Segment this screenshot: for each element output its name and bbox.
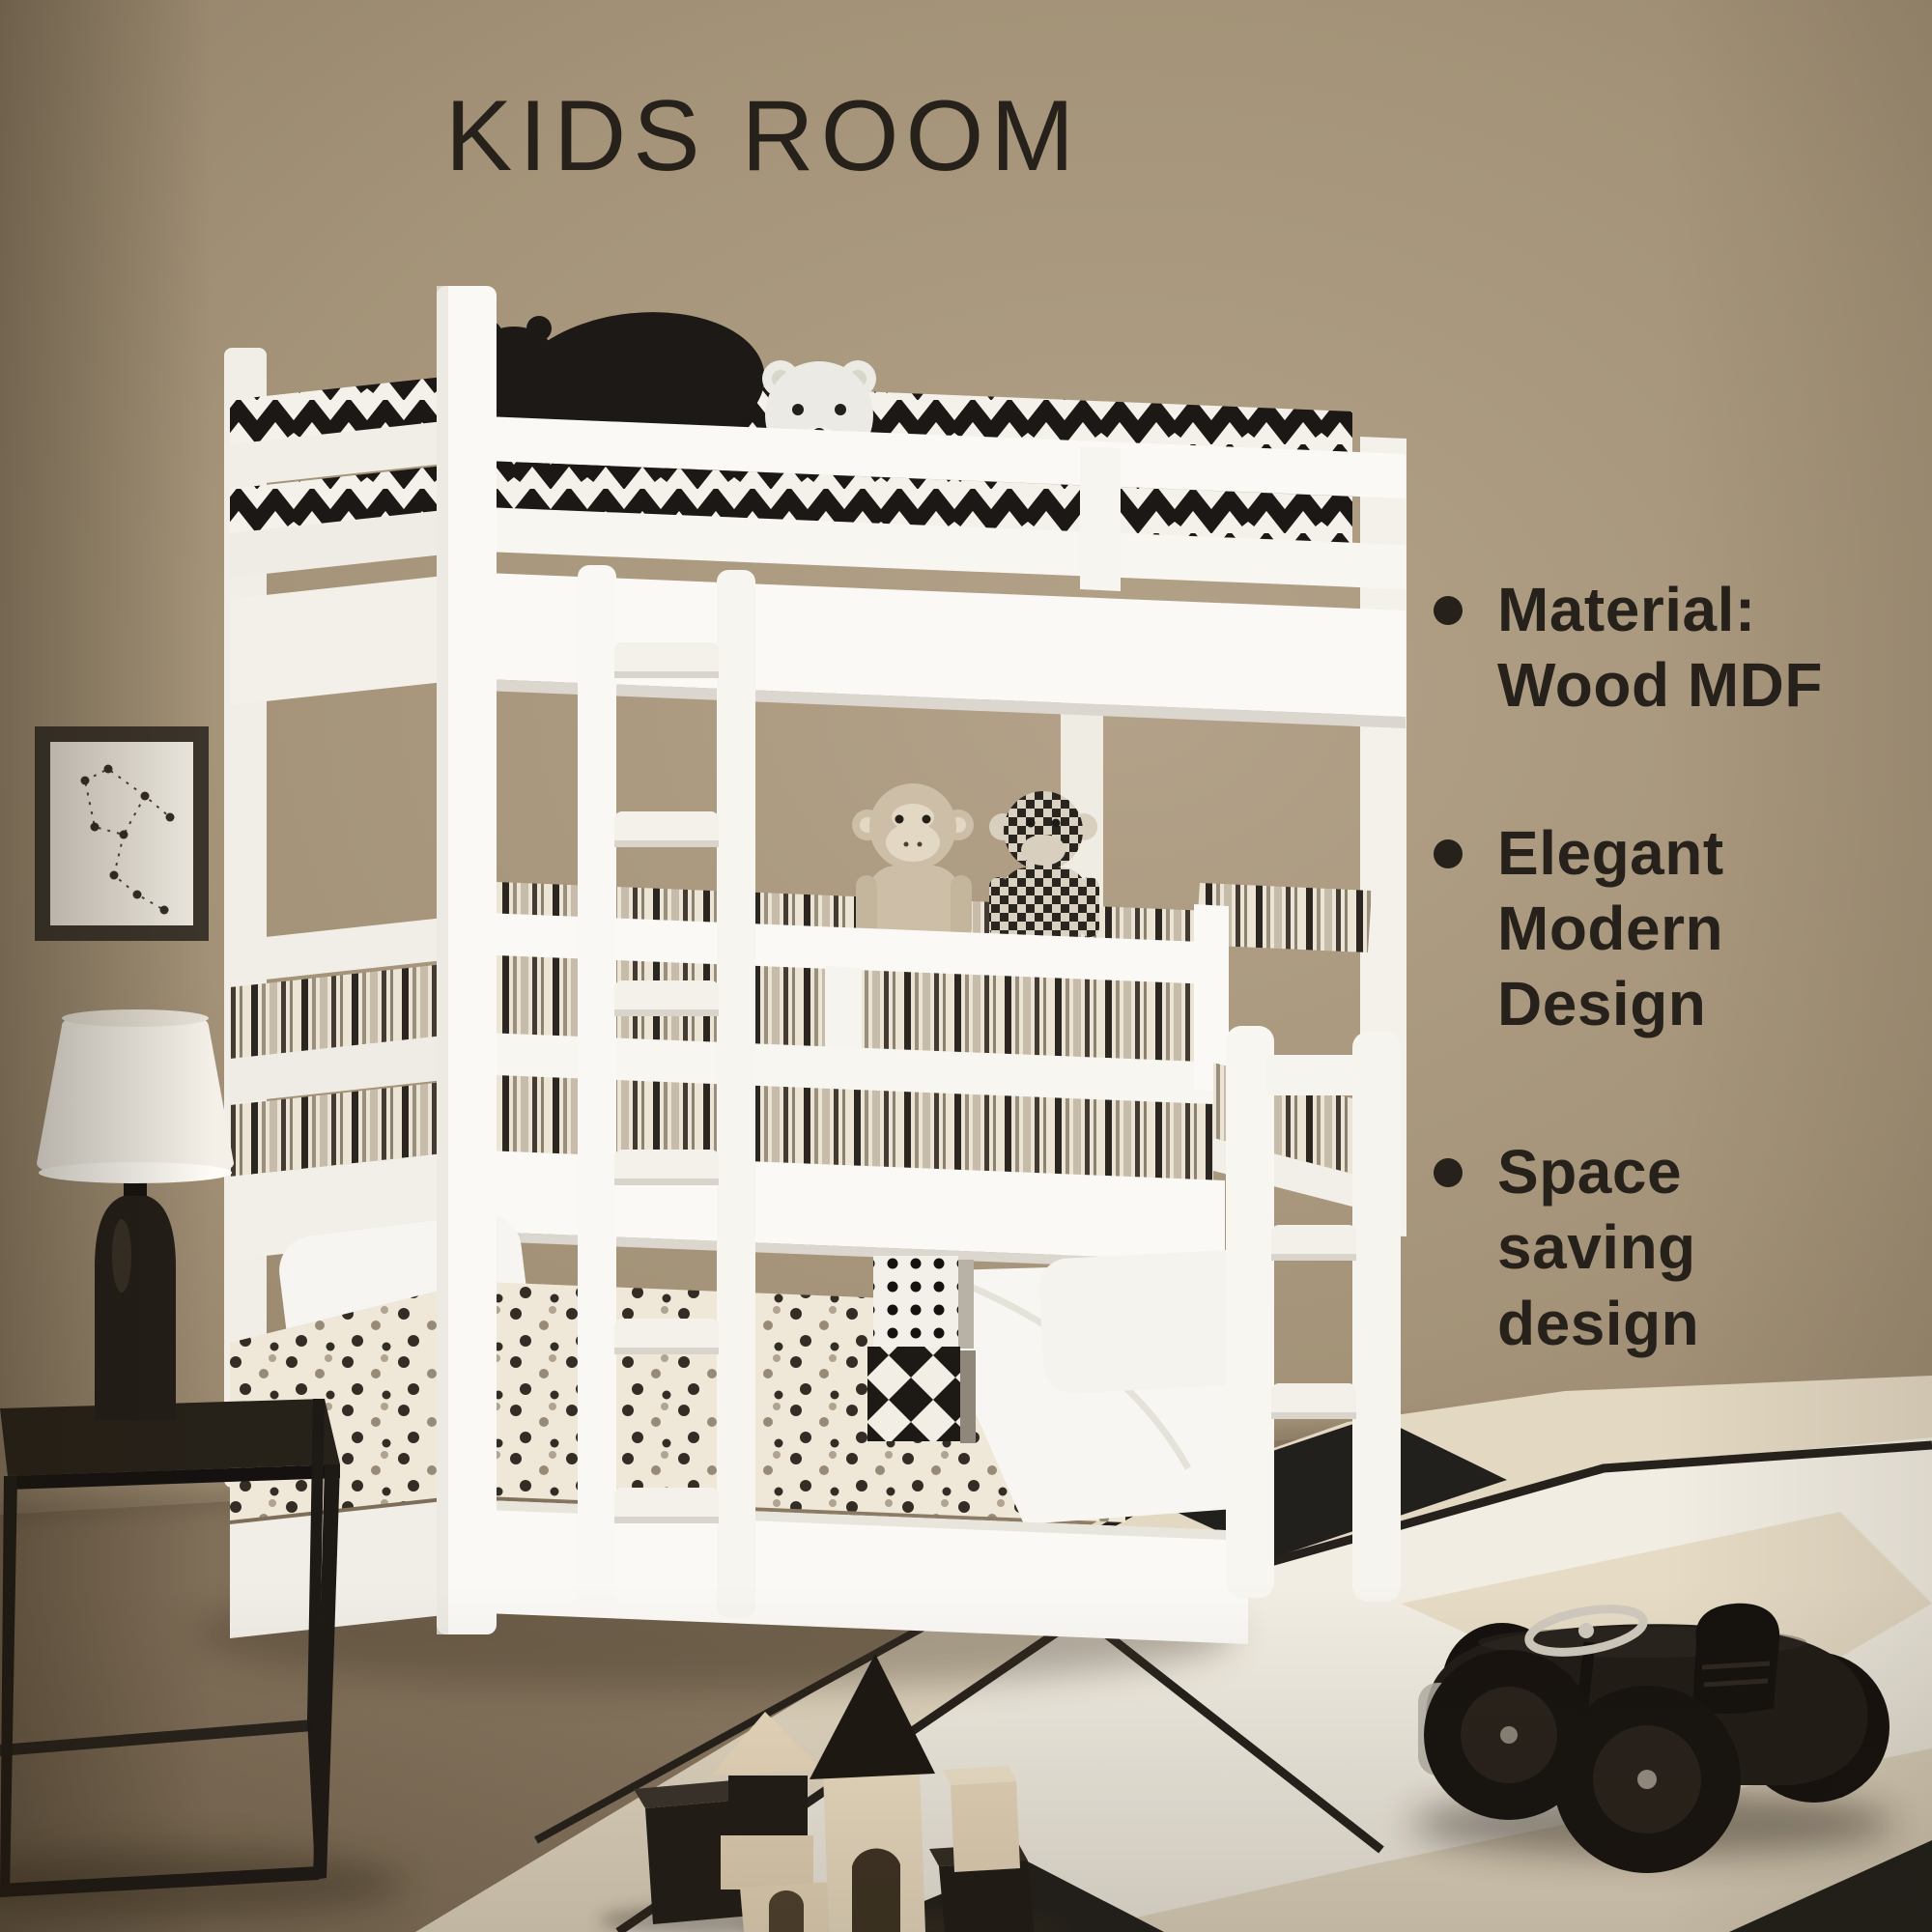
dice-block-toys: [867, 1256, 976, 1443]
lamp-shade: [37, 1010, 234, 1180]
feature-text: Material: Wood MDF: [1497, 572, 1823, 723]
top-bunk: [230, 300, 1406, 728]
feature-text: Space saving design: [1497, 1134, 1699, 1360]
bullet-dot: [1434, 1158, 1463, 1187]
feature-list: Material: Wood MDF Elegant Modern Design…: [1434, 572, 1903, 1454]
bullet-dot: [1434, 839, 1463, 868]
wall-art-frame: [35, 726, 209, 941]
monkey-plush-beige: [852, 783, 974, 943]
bullet-dot: [1434, 596, 1463, 625]
lamp-base: [95, 1194, 176, 1420]
feature-item-design: Elegant Modern Design: [1434, 815, 1903, 1041]
feature-item-space: Space saving design: [1434, 1134, 1903, 1360]
triple-bunk-bed: [224, 286, 1406, 1644]
car-seat: [1692, 1604, 1779, 1714]
kids-room-poster: KIDS ROOM Material: Wood MDF Elegant Mod…: [0, 0, 1932, 1932]
poster-title: KIDS ROOM: [280, 79, 1246, 194]
table-lamp: [37, 1009, 234, 1420]
feature-item-material: Material: Wood MDF: [1434, 572, 1903, 723]
middle-bunk: [230, 783, 1372, 1271]
feature-text: Elegant Modern Design: [1497, 815, 1724, 1041]
